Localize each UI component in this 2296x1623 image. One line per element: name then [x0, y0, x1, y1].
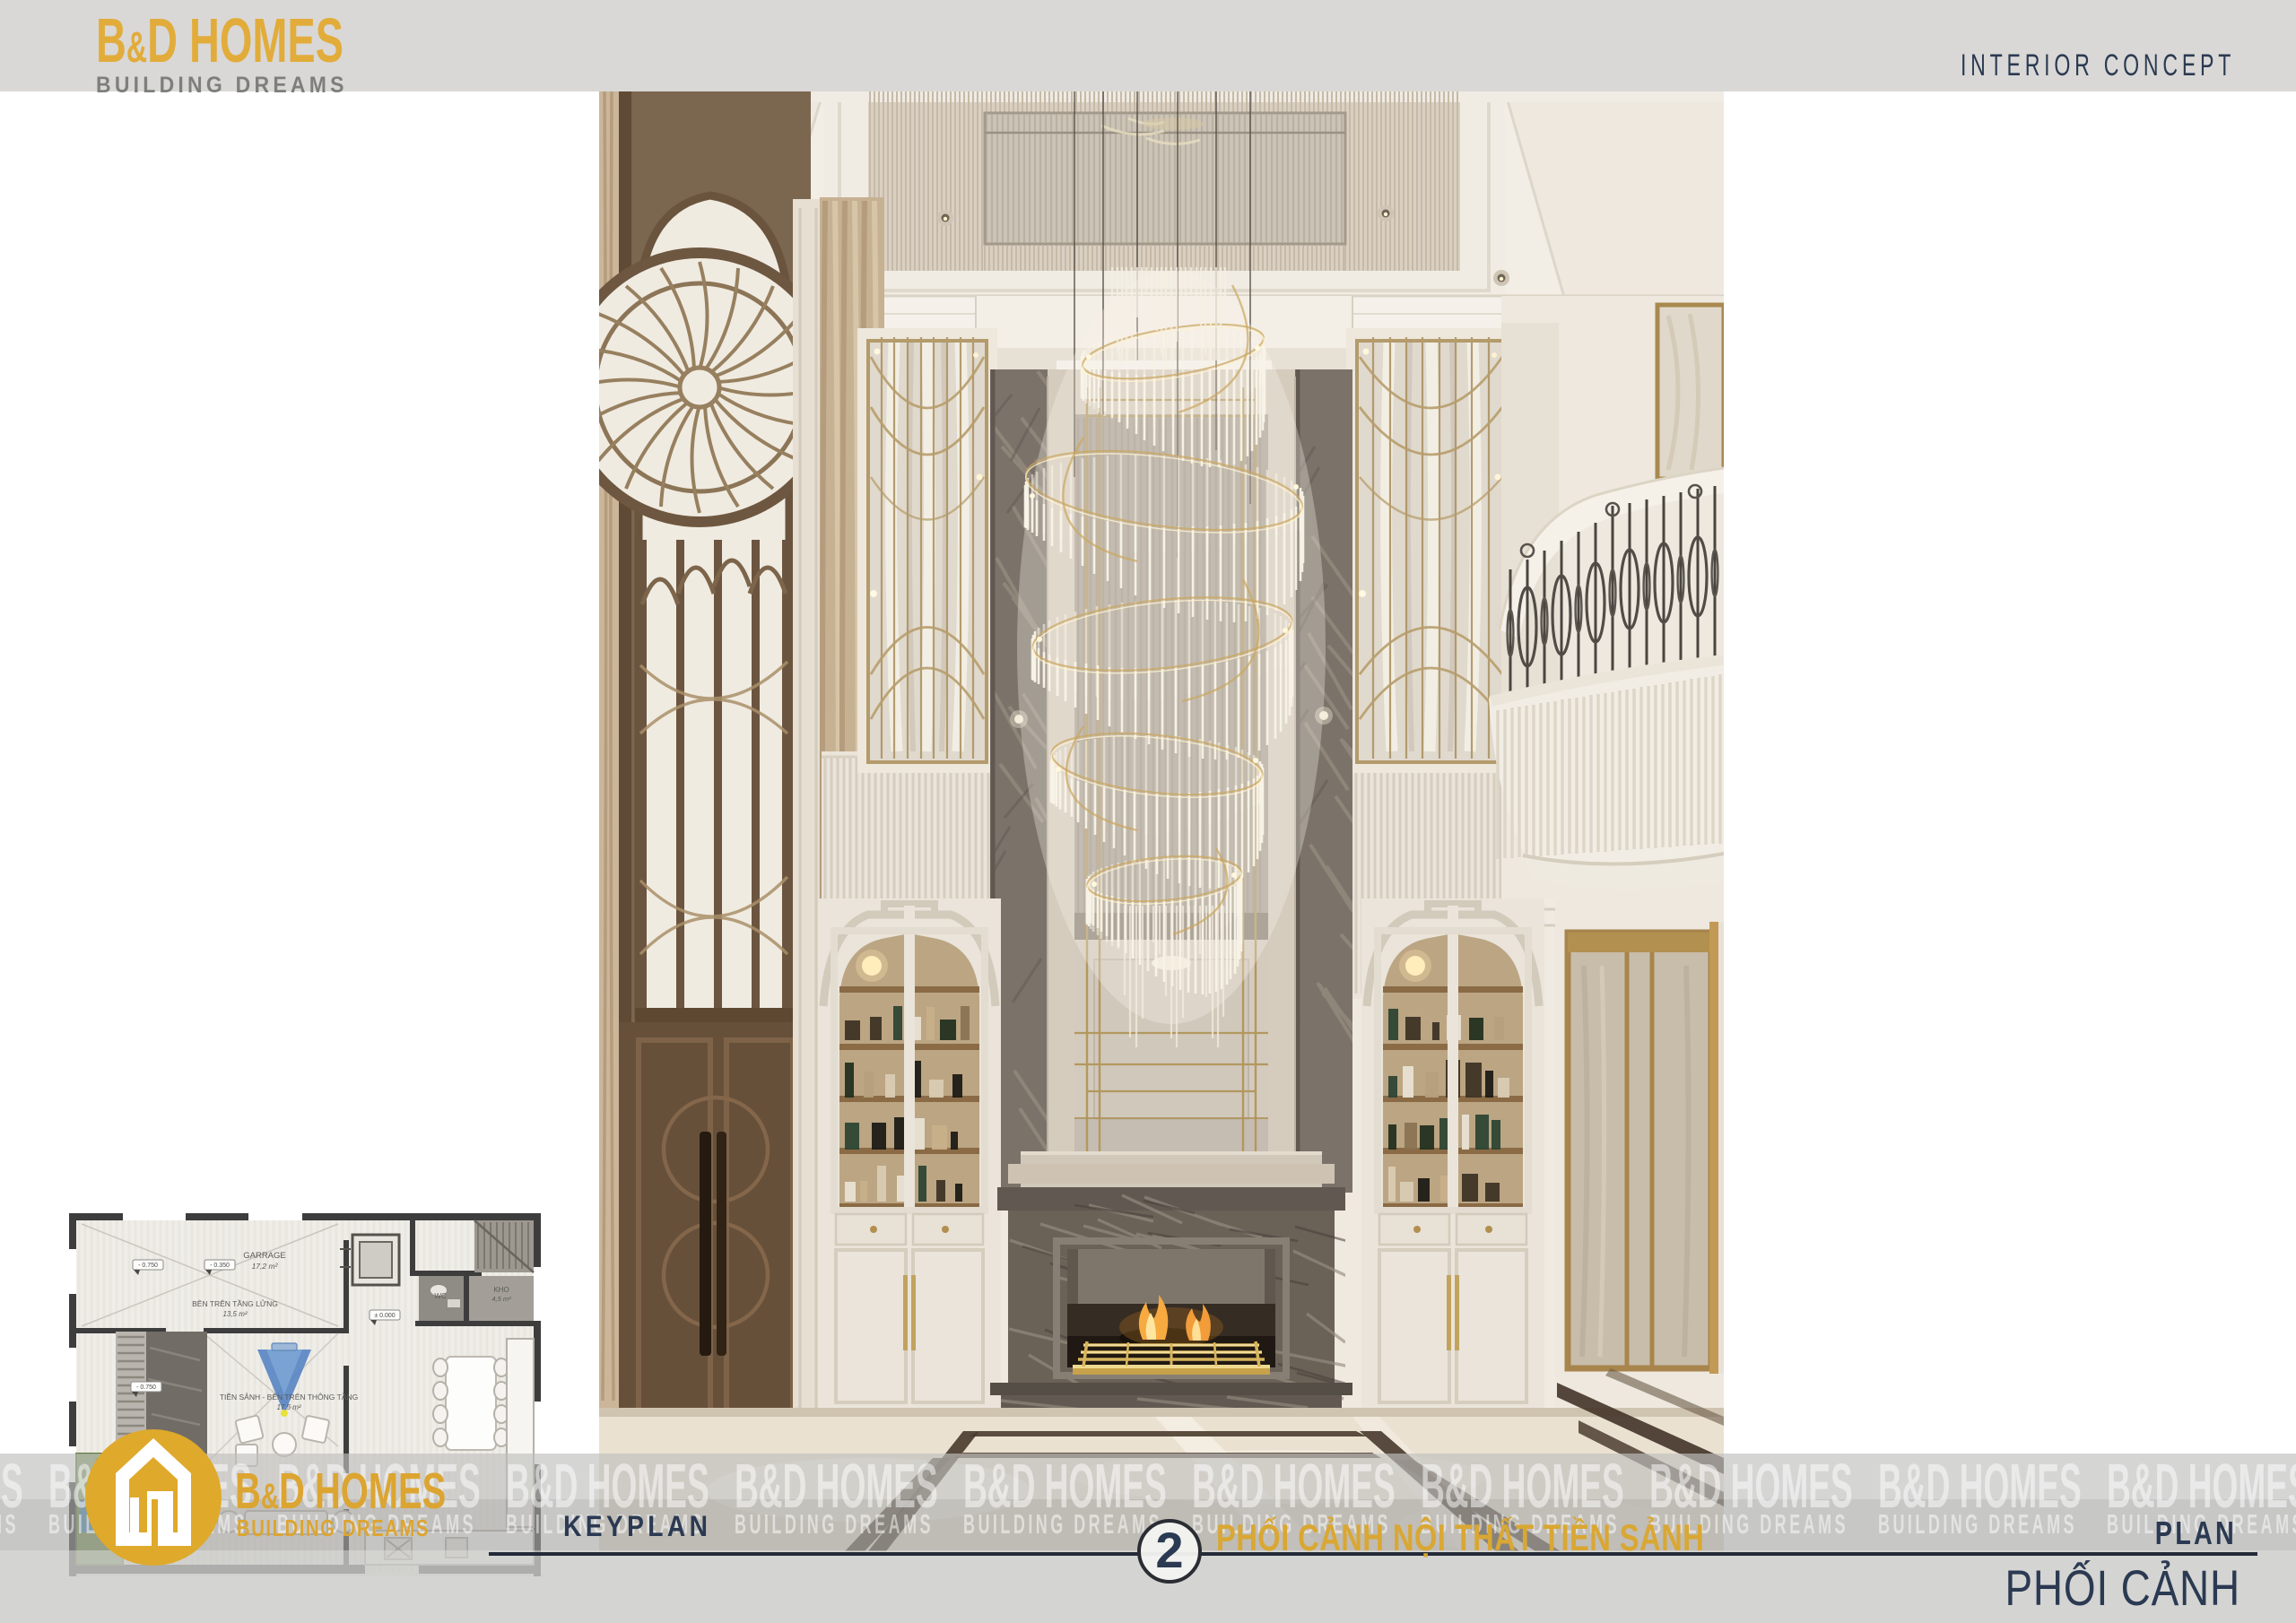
svg-text:BÊN TRÊN TẦNG LỬNG: BÊN TRÊN TẦNG LỬNG: [192, 1298, 278, 1308]
svg-text:4,5 m²: 4,5 m²: [491, 1295, 511, 1303]
svg-text:- 0.350: - 0.350: [210, 1263, 230, 1269]
svg-text:- 0.750: - 0.750: [136, 1384, 156, 1391]
svg-text:17,5 m²: 17,5 m²: [276, 1403, 300, 1411]
svg-text:GARRAGE: GARRAGE: [243, 1251, 286, 1261]
svg-text:17,2 m²: 17,2 m²: [252, 1262, 279, 1271]
svg-text:KHO: KHO: [493, 1286, 509, 1294]
svg-text:± 0.000: ± 0.000: [374, 1313, 395, 1319]
svg-text:WC: WC: [434, 1292, 447, 1300]
svg-text:- 0.750: - 0.750: [138, 1263, 158, 1269]
svg-text:TIỀN SẢNH - BÊN TRÊN THÔNG TẦN: TIỀN SẢNH - BÊN TRÊN THÔNG TẦNG: [220, 1392, 358, 1402]
svg-text:13,5 m²: 13,5 m²: [222, 1310, 247, 1318]
